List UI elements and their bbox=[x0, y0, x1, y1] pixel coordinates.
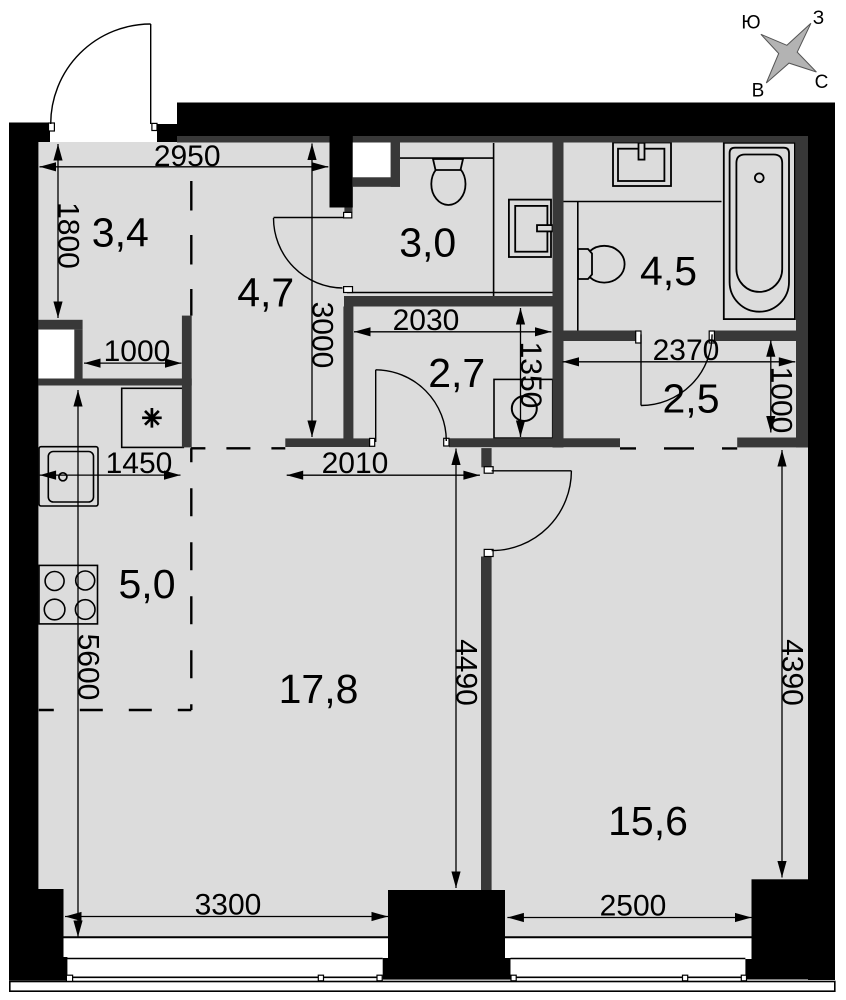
svg-text:3,4: 3,4 bbox=[92, 209, 149, 255]
svg-text:2370: 2370 bbox=[653, 334, 720, 367]
svg-text:1350: 1350 bbox=[514, 342, 547, 409]
svg-text:3,0: 3,0 bbox=[399, 220, 456, 266]
svg-text:5600: 5600 bbox=[72, 634, 105, 701]
svg-text:15,6: 15,6 bbox=[608, 798, 688, 844]
svg-text:17,8: 17,8 bbox=[279, 666, 359, 712]
svg-text:2030: 2030 bbox=[393, 304, 460, 337]
svg-text:Ю: Ю bbox=[741, 13, 760, 34]
svg-text:1800: 1800 bbox=[52, 202, 85, 269]
svg-text:4,7: 4,7 bbox=[237, 270, 294, 316]
svg-text:3300: 3300 bbox=[195, 889, 262, 922]
svg-text:В: В bbox=[752, 81, 765, 102]
svg-text:2,5: 2,5 bbox=[663, 375, 720, 421]
svg-text:1000: 1000 bbox=[764, 367, 797, 434]
svg-text:4490: 4490 bbox=[450, 639, 483, 706]
svg-text:1000: 1000 bbox=[104, 335, 171, 368]
svg-text:2010: 2010 bbox=[322, 447, 389, 480]
svg-text:2950: 2950 bbox=[154, 140, 221, 173]
svg-text:2,7: 2,7 bbox=[428, 350, 485, 396]
svg-text:3000: 3000 bbox=[306, 302, 339, 369]
svg-text:З: З bbox=[813, 8, 824, 29]
svg-text:1450: 1450 bbox=[106, 447, 173, 480]
svg-text:4390: 4390 bbox=[776, 639, 809, 706]
svg-text:4,5: 4,5 bbox=[640, 248, 697, 294]
svg-text:2500: 2500 bbox=[600, 890, 667, 923]
svg-text:5,0: 5,0 bbox=[119, 561, 176, 607]
svg-text:С: С bbox=[815, 72, 829, 93]
